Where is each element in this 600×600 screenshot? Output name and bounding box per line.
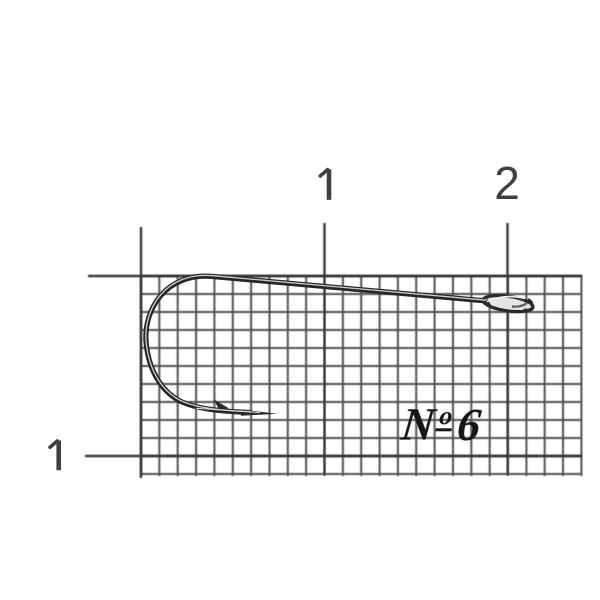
svg-text:2: 2 [494, 157, 520, 209]
